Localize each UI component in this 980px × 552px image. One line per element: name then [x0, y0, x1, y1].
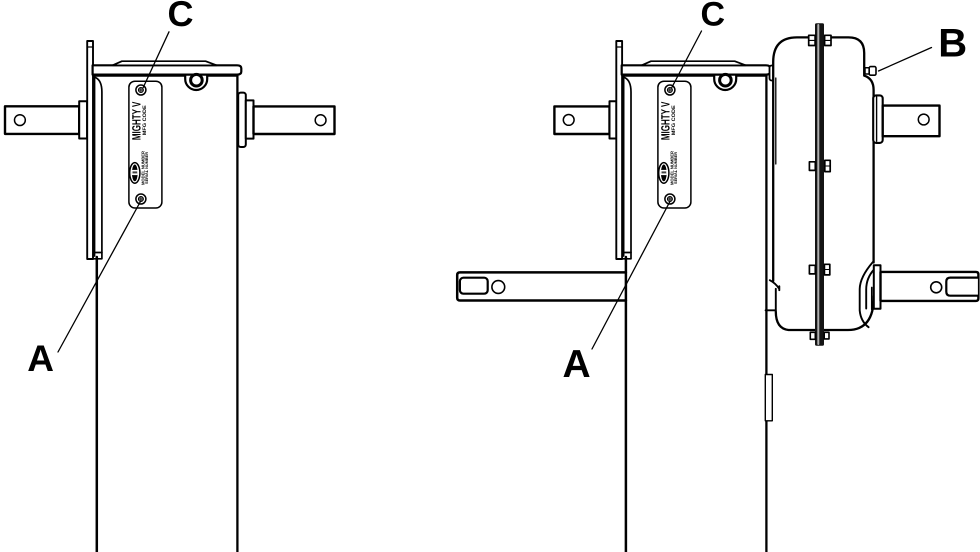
svg-text:SERIAL NUMBER: SERIAL NUMBER: [674, 152, 678, 184]
svg-text:A: A: [563, 343, 591, 386]
svg-text:B: B: [938, 21, 967, 65]
svg-text:SERIAL NUMBER: SERIAL NUMBER: [145, 152, 149, 184]
svg-text:C: C: [701, 0, 726, 34]
svg-text:A: A: [27, 338, 54, 379]
svg-text:C: C: [168, 0, 194, 34]
svg-text:MFG CODE: MFG CODE: [142, 105, 148, 136]
svg-text:MFG CODE: MFG CODE: [671, 105, 677, 136]
